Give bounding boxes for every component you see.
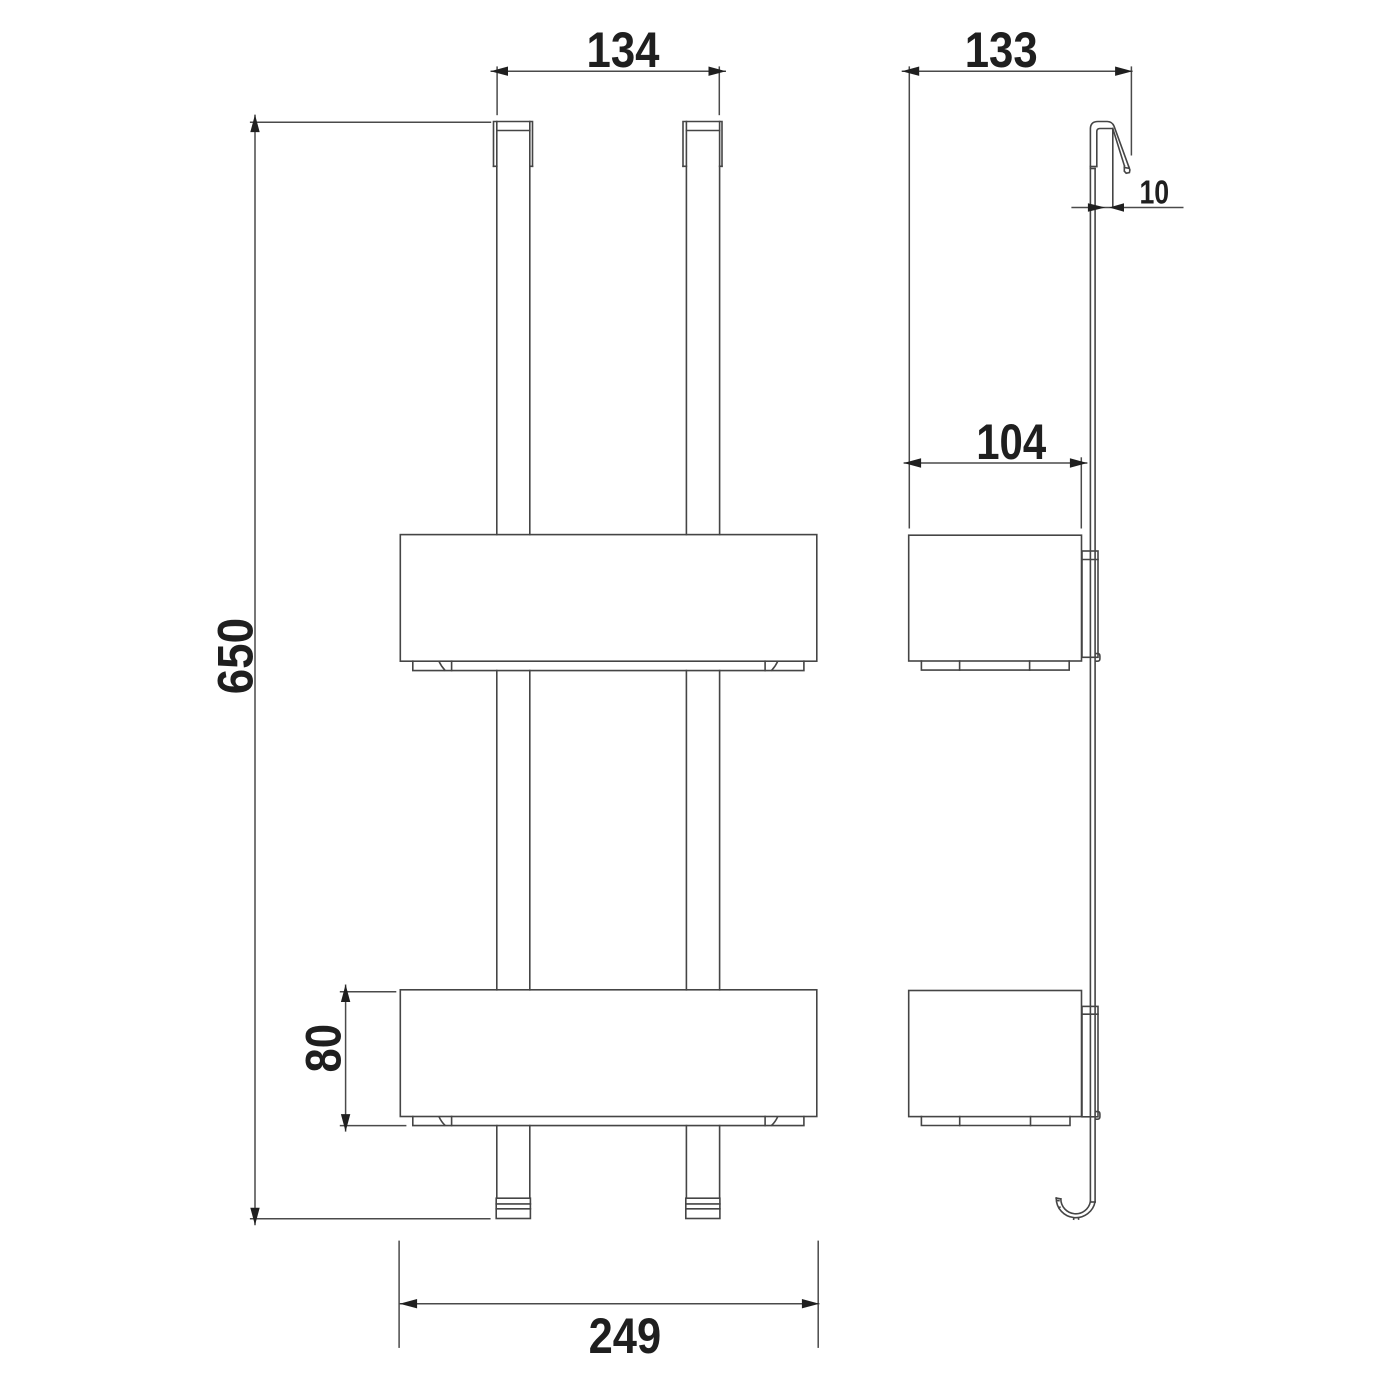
- svg-text:80: 80: [295, 1024, 351, 1073]
- svg-text:650: 650: [208, 618, 264, 694]
- svg-text:134: 134: [587, 22, 660, 78]
- svg-text:249: 249: [589, 1308, 662, 1364]
- svg-text:104: 104: [976, 414, 1046, 470]
- svg-text:133: 133: [965, 22, 1038, 78]
- svg-text:10: 10: [1139, 174, 1169, 211]
